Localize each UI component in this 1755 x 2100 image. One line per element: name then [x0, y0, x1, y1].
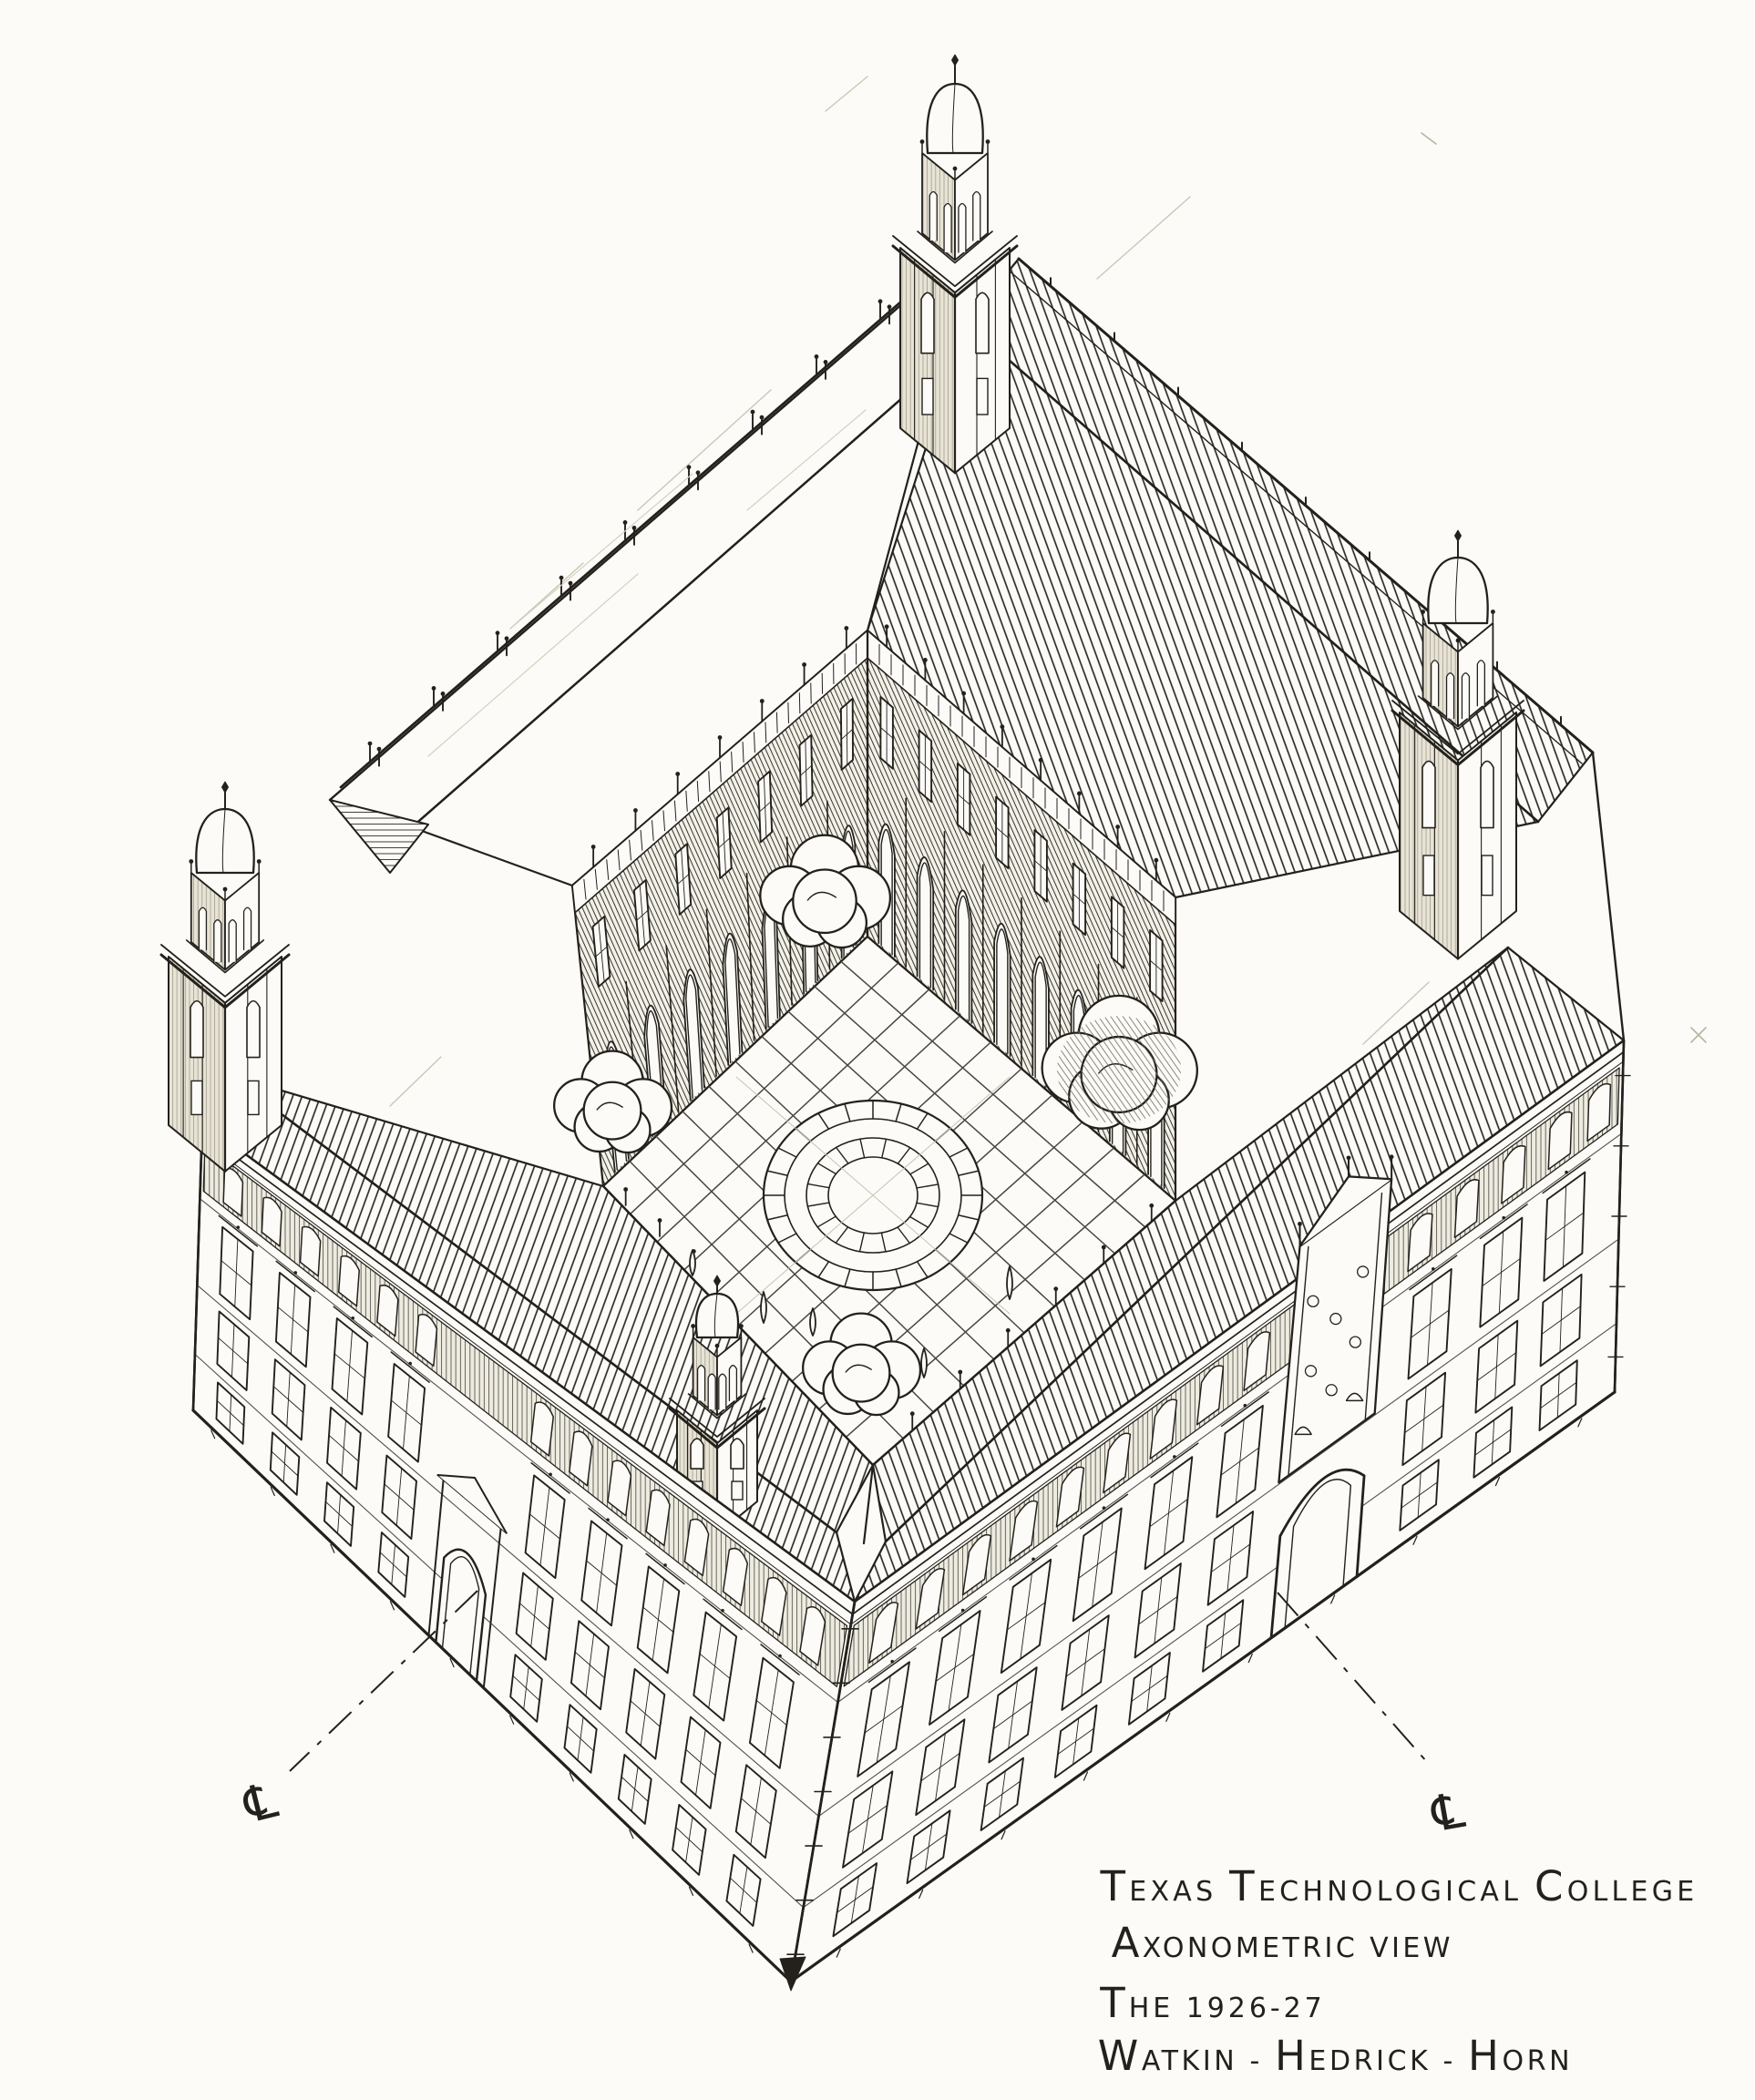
axonometric-drawing: ℄ ℄ TEXAS TECHNOLOGICAL COLLEGE AXONOMET…	[0, 0, 1755, 2100]
caption-initial: T	[1099, 1862, 1127, 1910]
scanned-sketch-page: ℄ ℄ TEXAS TECHNOLOGICAL COLLEGE AXONOMET…	[0, 0, 1755, 2100]
